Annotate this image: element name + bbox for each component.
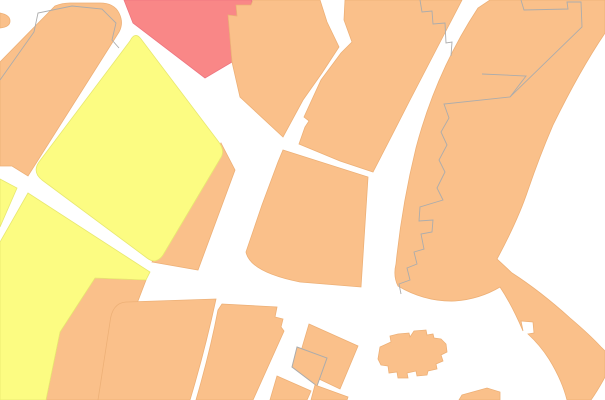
center-block[interactable] <box>246 150 368 287</box>
church-building[interactable] <box>378 330 447 378</box>
south-block-west[interactable] <box>98 299 216 400</box>
south-sliver-west[interactable] <box>270 376 311 400</box>
map-viewport[interactable] <box>0 0 605 400</box>
south-sliver-east[interactable] <box>459 388 500 400</box>
left-edge-bump[interactable] <box>0 13 10 28</box>
map-canvas[interactable] <box>0 0 605 400</box>
south-sliver-mid[interactable] <box>311 385 348 400</box>
zones-layer <box>0 0 605 400</box>
